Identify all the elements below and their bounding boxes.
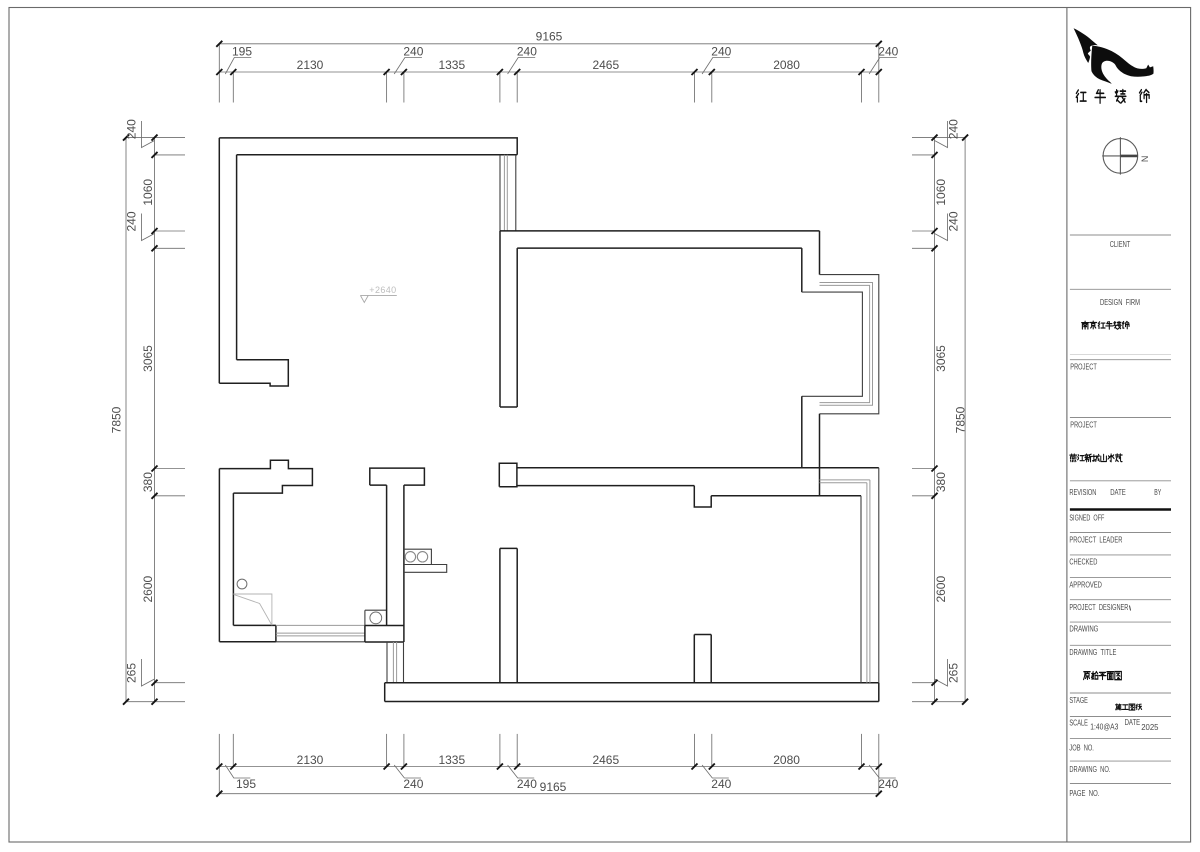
svg-text:7850: 7850 [954,406,968,433]
svg-text:CHECKED: CHECKED [1069,557,1097,566]
svg-text:1335: 1335 [438,753,465,767]
svg-text:DATE: DATE [1110,488,1126,497]
svg-text:DRAWING NO.: DRAWING NO. [1069,765,1110,774]
svg-text:JOB NO.: JOB NO. [1069,743,1094,752]
svg-text:2600: 2600 [934,576,948,603]
svg-text:380: 380 [934,472,948,492]
svg-text:1060: 1060 [141,179,155,206]
svg-text:2025: 2025 [1141,723,1159,732]
svg-text:240: 240 [878,44,898,58]
svg-text:240: 240 [125,119,139,139]
svg-text:240: 240 [711,44,731,58]
svg-text:SCALE: SCALE [1069,719,1088,728]
svg-text:3065: 3065 [141,345,155,372]
svg-text:PAGE NO.: PAGE NO. [1069,789,1099,798]
svg-text:265: 265 [947,663,961,683]
svg-text:240: 240 [711,777,731,791]
svg-text:240: 240 [517,44,537,58]
svg-text:240: 240 [947,211,961,231]
svg-text:DRAWING: DRAWING [1069,625,1098,634]
svg-text:CLIENT: CLIENT [1110,240,1131,249]
svg-text:APPROVED: APPROVED [1069,581,1102,590]
svg-text:+2640: +2640 [369,285,396,295]
svg-text:STAGE: STAGE [1069,696,1088,705]
svg-text:2465: 2465 [592,753,619,767]
svg-text:240: 240 [517,777,537,791]
svg-text:2130: 2130 [297,58,324,72]
svg-text:1:40@A3: 1:40@A3 [1090,723,1118,732]
svg-text:N: N [1140,156,1150,163]
svg-text:240: 240 [125,211,139,231]
svg-text:SIGNED OFF: SIGNED OFF [1069,513,1104,522]
svg-text:BY: BY [1154,488,1161,497]
svg-text:2465: 2465 [592,58,619,72]
svg-text:PROJECT DESIGNER: PROJECT DESIGNER [1069,603,1128,612]
svg-text:240: 240 [403,44,423,58]
svg-text:DRAWING TITLE: DRAWING TITLE [1069,648,1116,657]
svg-text:1335: 1335 [438,58,465,72]
svg-text:2080: 2080 [773,58,800,72]
svg-text:PROJECT: PROJECT [1070,363,1097,372]
svg-text:240: 240 [403,777,423,791]
svg-text:380: 380 [141,472,155,492]
svg-text:3065: 3065 [934,345,948,372]
svg-text:240: 240 [878,777,898,791]
svg-text:9165: 9165 [540,780,567,794]
svg-text:DESIGN FIRM: DESIGN FIRM [1100,298,1140,307]
svg-text:DATE: DATE [1125,718,1141,727]
svg-text:REVISION: REVISION [1069,488,1096,497]
svg-text:2080: 2080 [773,753,800,767]
svg-text:PROJECT LEADER: PROJECT LEADER [1069,536,1122,545]
svg-text:PROJECT: PROJECT [1070,420,1097,429]
svg-text:195: 195 [236,777,256,791]
svg-text:265: 265 [125,663,139,683]
svg-text:2130: 2130 [297,753,324,767]
svg-text:2600: 2600 [141,576,155,603]
svg-text:9165: 9165 [536,30,563,44]
svg-text:7850: 7850 [110,406,124,433]
svg-text:1060: 1060 [934,179,948,206]
svg-text:240: 240 [947,119,961,139]
svg-text:195: 195 [232,44,252,58]
